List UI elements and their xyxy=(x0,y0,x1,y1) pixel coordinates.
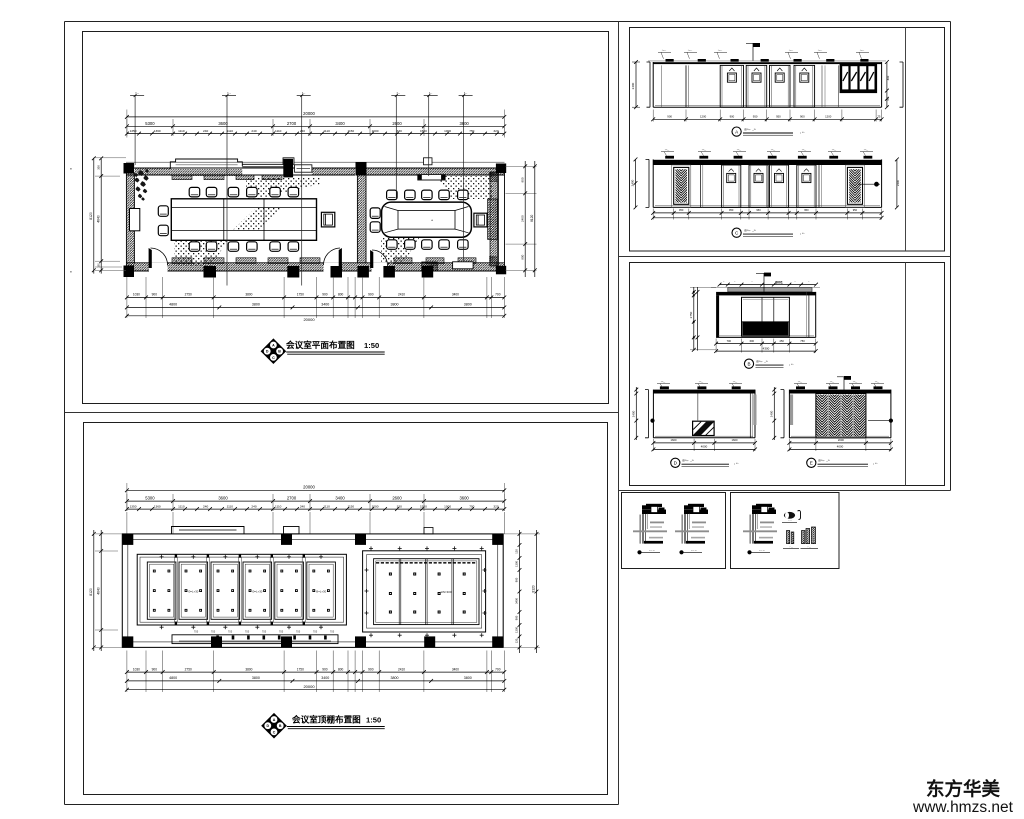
svg-text:≊≈⌐ ‥≈: ≊≈⌐ ‥≈ xyxy=(682,459,694,463)
svg-text:会议室顶棚布置图: 会议室顶棚布置图 xyxy=(292,714,361,725)
svg-text:≊≈⌐ ‥≈: ≊≈⌐ ‥≈ xyxy=(744,229,756,233)
svg-text:2410: 2410 xyxy=(398,667,405,671)
svg-text:◦⌐‥: ◦⌐‥ xyxy=(665,147,670,151)
svg-text:1110: 1110 xyxy=(178,504,185,508)
svg-text:3400: 3400 xyxy=(452,293,459,297)
svg-text:750: 750 xyxy=(469,504,474,508)
svg-text:2400: 2400 xyxy=(631,82,635,89)
svg-text:3800: 3800 xyxy=(245,293,252,297)
svg-text:≊≈⌐ ‥≈: ≊≈⌐ ‥≈ xyxy=(744,127,756,131)
svg-text:≊≈⌐ ‥≈: ≊≈⌐ ‥≈ xyxy=(818,459,830,463)
svg-text:900: 900 xyxy=(520,177,524,182)
svg-text:1110: 1110 xyxy=(323,129,330,133)
svg-text:900: 900 xyxy=(520,254,524,259)
svg-text:D: D xyxy=(266,724,269,728)
svg-text:1360: 1360 xyxy=(154,504,161,508)
svg-text:5300: 5300 xyxy=(145,121,155,126)
svg-text:950: 950 xyxy=(776,115,781,119)
svg-text:8120: 8120 xyxy=(532,585,536,592)
svg-text:2600: 2600 xyxy=(392,496,402,501)
svg-text:◦⌐‥: ◦⌐‥ xyxy=(771,147,776,151)
svg-text:A: A xyxy=(273,718,276,722)
svg-text:1000: 1000 xyxy=(444,504,451,508)
svg-text:⌐‥: ⌐‥ xyxy=(808,545,811,548)
svg-text:1110: 1110 xyxy=(323,504,330,508)
svg-text:2400: 2400 xyxy=(520,215,524,222)
svg-text:1:50: 1:50 xyxy=(366,716,381,725)
svg-text:75: 75 xyxy=(877,115,881,119)
svg-text:900: 900 xyxy=(368,667,374,671)
svg-text:◦⌐‥: ◦⌐‥ xyxy=(853,379,858,383)
svg-text:◦⌐‥: ◦⌐‥ xyxy=(789,48,794,52)
svg-text:4800: 4800 xyxy=(169,303,177,307)
svg-text:2750: 2750 xyxy=(185,293,192,297)
svg-text:3600: 3600 xyxy=(459,496,469,501)
svg-text:1200: 1200 xyxy=(825,115,832,119)
svg-text:3800: 3800 xyxy=(464,303,472,307)
svg-text:3800: 3800 xyxy=(391,303,399,307)
svg-text:www.hmzs.net: www.hmzs.net xyxy=(912,799,1014,816)
svg-text:20000: 20000 xyxy=(303,485,315,490)
svg-text:3400: 3400 xyxy=(321,676,329,680)
svg-text:1110: 1110 xyxy=(227,504,234,508)
svg-text:20000: 20000 xyxy=(303,317,315,322)
svg-text:1:50: 1:50 xyxy=(364,341,379,350)
svg-text:3800: 3800 xyxy=(245,667,252,671)
svg-text:240: 240 xyxy=(300,129,305,133)
svg-text:800: 800 xyxy=(338,293,344,297)
svg-text:◦⌐‥: ◦⌐‥ xyxy=(802,147,807,151)
svg-text:3600: 3600 xyxy=(459,121,469,126)
svg-text:320: 320 xyxy=(493,129,498,133)
svg-text:◦⌐‥: ◦⌐‥ xyxy=(737,147,742,151)
svg-text:3600: 3600 xyxy=(218,496,228,501)
svg-text:2400: 2400 xyxy=(896,179,900,186)
svg-text:≡: ≡ xyxy=(70,270,72,274)
svg-text:B: B xyxy=(279,724,282,728)
svg-text:750: 750 xyxy=(469,129,474,133)
svg-text:240: 240 xyxy=(300,504,305,508)
svg-text:4640: 4640 xyxy=(96,587,100,595)
svg-text:1030: 1030 xyxy=(133,667,140,671)
svg-text:1000: 1000 xyxy=(444,129,451,133)
svg-text:◦⌐‥: ◦⌐‥ xyxy=(662,48,667,52)
svg-text:Θ=L+30: Θ=L+30 xyxy=(316,590,327,594)
svg-text:3800: 3800 xyxy=(252,676,260,680)
svg-text:8120: 8120 xyxy=(530,215,534,222)
svg-text:1000: 1000 xyxy=(372,129,379,133)
svg-text:◦⌐‥: ◦⌐‥ xyxy=(875,379,880,383)
svg-text:3800: 3800 xyxy=(252,303,260,307)
svg-text:2400: 2400 xyxy=(631,410,635,417)
svg-text:330: 330 xyxy=(397,129,402,133)
svg-text:2400: 2400 xyxy=(769,410,773,417)
svg-text:5300: 5300 xyxy=(145,496,155,501)
svg-text:◦⌐‥: ◦⌐‥ xyxy=(830,379,835,383)
svg-text:8120: 8120 xyxy=(89,212,93,220)
svg-text:◦⌐‥: ◦⌐‥ xyxy=(699,379,704,383)
svg-text:1110: 1110 xyxy=(275,504,282,508)
svg-text:2750: 2750 xyxy=(185,667,192,671)
svg-text:4000: 4000 xyxy=(701,445,708,449)
svg-text:1350: 1350 xyxy=(130,129,137,133)
svg-text:1110: 1110 xyxy=(275,129,282,133)
svg-text:900: 900 xyxy=(730,115,735,119)
svg-text:⌐‥ ⌐: ⌐‥ ⌐ xyxy=(691,549,697,552)
svg-text:⌐‥ ⌐: ⌐‥ ⌐ xyxy=(759,549,765,552)
svg-text:D: D xyxy=(266,350,269,354)
svg-text:会议室平面布置图: 会议室平面布置图 xyxy=(286,339,355,350)
svg-text:⌐‥: ⌐‥ xyxy=(789,519,792,522)
svg-text:3400: 3400 xyxy=(335,121,345,126)
svg-text:700: 700 xyxy=(495,293,501,297)
svg-text:3800: 3800 xyxy=(391,676,399,680)
svg-text:C: C xyxy=(273,730,276,734)
svg-text:◦⌐‥: ◦⌐‥ xyxy=(702,147,707,151)
svg-text:◦⌐‥: ◦⌐‥ xyxy=(661,379,666,383)
svg-text:◦⌐‥: ◦⌐‥ xyxy=(818,48,823,52)
svg-text:B: B xyxy=(278,350,281,354)
svg-text:东方华美: 东方华美 xyxy=(926,779,1001,800)
svg-text:1500: 1500 xyxy=(420,129,427,133)
svg-text:2400: 2400 xyxy=(631,179,635,186)
svg-text:900: 900 xyxy=(322,667,328,671)
svg-text:20000: 20000 xyxy=(303,111,315,116)
svg-text:330: 330 xyxy=(397,504,402,508)
svg-text:1500: 1500 xyxy=(420,504,427,508)
svg-text:3400: 3400 xyxy=(452,667,459,671)
svg-text:950: 950 xyxy=(753,115,758,119)
svg-text:1110: 1110 xyxy=(227,129,234,133)
svg-text:4640: 4640 xyxy=(96,215,100,223)
svg-text:2600: 2600 xyxy=(392,121,402,126)
svg-text:◦⌐‥: ◦⌐‥ xyxy=(832,147,837,151)
svg-text:240: 240 xyxy=(203,504,208,508)
svg-text:900: 900 xyxy=(667,115,672,119)
svg-text:2700: 2700 xyxy=(287,121,297,126)
svg-text:C: C xyxy=(272,356,275,360)
svg-text:8120: 8120 xyxy=(89,588,93,596)
svg-text:2750: 2750 xyxy=(689,311,693,318)
svg-text:⌐‥ ⌐: ⌐‥ ⌐ xyxy=(649,549,655,552)
svg-text:4000: 4000 xyxy=(837,445,844,449)
svg-text:800: 800 xyxy=(338,667,344,671)
svg-text:20000: 20000 xyxy=(303,684,315,689)
svg-text:ΘN=300: ΘN=300 xyxy=(441,590,452,594)
svg-text:◦⌐‥: ◦⌐‥ xyxy=(864,147,869,151)
svg-text:4800: 4800 xyxy=(169,676,177,680)
svg-text:◦⌐‥: ◦⌐‥ xyxy=(860,48,865,52)
svg-text:3600: 3600 xyxy=(218,121,228,126)
svg-text:≊≈⌐ ‥≈: ≊≈⌐ ‥≈ xyxy=(756,360,768,364)
svg-text:1000: 1000 xyxy=(372,504,379,508)
svg-text:◦⌐‥: ◦⌐‥ xyxy=(718,48,723,52)
svg-text:2410: 2410 xyxy=(398,293,405,297)
svg-text:◦⌐‥: ◦⌐‥ xyxy=(733,379,738,383)
svg-text:≡: ≡ xyxy=(70,167,72,171)
svg-text:1030: 1030 xyxy=(133,293,140,297)
svg-text:1200: 1200 xyxy=(700,115,707,119)
svg-text:900: 900 xyxy=(152,667,158,671)
svg-text:240: 240 xyxy=(251,504,256,508)
svg-text:3800: 3800 xyxy=(464,676,472,680)
svg-text:900: 900 xyxy=(800,115,805,119)
svg-text:1360: 1360 xyxy=(154,129,161,133)
svg-text:1110: 1110 xyxy=(178,129,185,133)
svg-text:1750: 1750 xyxy=(297,667,304,671)
svg-text:1350: 1350 xyxy=(130,504,137,508)
svg-text:2700: 2700 xyxy=(287,496,297,501)
svg-text:1150: 1150 xyxy=(347,129,354,133)
svg-text:◦⌐‥: ◦⌐‥ xyxy=(798,379,803,383)
svg-text:700: 700 xyxy=(495,667,501,671)
svg-text:B: B xyxy=(747,361,750,366)
svg-text:320: 320 xyxy=(493,504,498,508)
svg-text:240: 240 xyxy=(251,129,256,133)
svg-text:900: 900 xyxy=(368,293,374,297)
svg-text:A: A xyxy=(272,343,275,347)
svg-text:240: 240 xyxy=(203,129,208,133)
svg-text:E: E xyxy=(810,461,813,466)
svg-text:4300: 4300 xyxy=(763,346,770,350)
svg-text:Θ=L+30: Θ=L+30 xyxy=(252,590,263,594)
svg-text:1750: 1750 xyxy=(297,293,304,297)
svg-text:150: 150 xyxy=(97,263,100,268)
svg-text:3400: 3400 xyxy=(335,496,345,501)
svg-text:900: 900 xyxy=(322,293,328,297)
svg-text:900: 900 xyxy=(152,293,158,297)
svg-text:◦⌐‥: ◦⌐‥ xyxy=(688,48,693,52)
svg-text:⌐‥: ⌐‥ xyxy=(790,545,793,548)
svg-text:1150: 1150 xyxy=(347,504,354,508)
svg-text:Θ=L+30: Θ=L+30 xyxy=(188,590,199,594)
svg-text:3400: 3400 xyxy=(321,303,329,307)
